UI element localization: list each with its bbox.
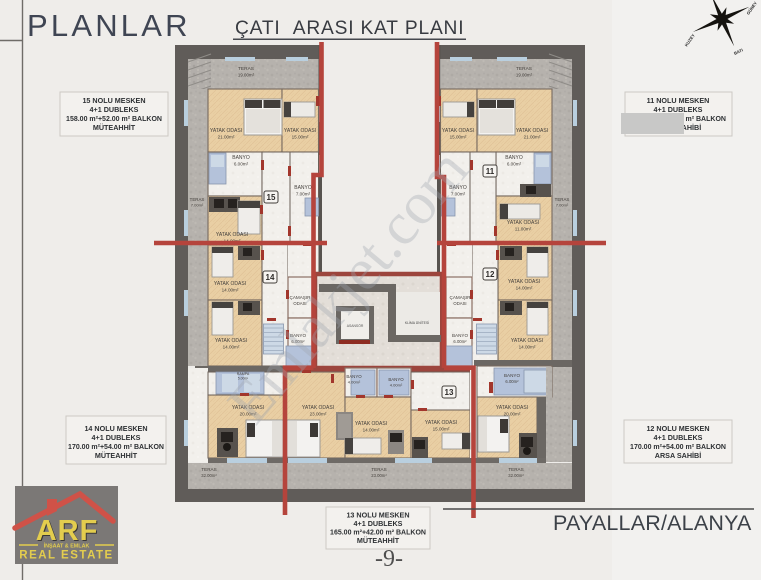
svg-text:ARF: ARF	[36, 515, 99, 547]
svg-text:4.00m²: 4.00m²	[390, 383, 403, 388]
svg-text:YATAK ODASI: YATAK ODASI	[507, 220, 539, 226]
svg-text:7.00m²: 7.00m²	[296, 191, 311, 196]
svg-text:BANYO: BANYO	[452, 333, 469, 338]
svg-text:13: 13	[445, 388, 454, 397]
svg-text:PLANLAR: PLANLAR	[27, 8, 191, 43]
svg-text:YATAK ODASI: YATAK ODASI	[284, 128, 316, 134]
svg-text:11 NOLU MESKEN: 11 NOLU MESKEN	[647, 96, 710, 105]
svg-text:15.00m²: 15.00m²	[433, 426, 450, 431]
svg-text:TERAS: TERAS	[190, 197, 205, 202]
svg-text:6.00m²: 6.00m²	[505, 379, 519, 384]
svg-text:REAL ESTATE: REAL ESTATE	[19, 550, 113, 562]
svg-text:15.00m²: 15.00m²	[292, 134, 309, 139]
svg-text:6.00m²: 6.00m²	[234, 161, 249, 166]
svg-text:BANYO: BANYO	[388, 377, 404, 382]
svg-text:4+1 DUBLEKS: 4+1 DUBLEKS	[354, 519, 403, 528]
svg-text:BANYO: BANYO	[294, 185, 312, 191]
svg-text:YATAK ODASI: YATAK ODASI	[210, 128, 242, 134]
svg-text:15 NOLU MESKEN: 15 NOLU MESKEN	[82, 96, 145, 105]
svg-text:YATAK ODASI: YATAK ODASI	[355, 421, 387, 427]
svg-text:YATAK ODASI: YATAK ODASI	[216, 232, 248, 238]
svg-text:ÇATI ARASI KAT PLANI: ÇATI ARASI KAT PLANI	[235, 18, 464, 39]
svg-text:YATAK ODASI: YATAK ODASI	[508, 279, 540, 285]
svg-text:21.00m²: 21.00m²	[218, 134, 235, 139]
svg-text:15.00m²: 15.00m²	[450, 134, 467, 139]
svg-text:ODASI: ODASI	[453, 301, 466, 306]
svg-text:4.00m²: 4.00m²	[348, 380, 361, 385]
svg-text:7.00m²: 7.00m²	[556, 203, 569, 208]
svg-text:BANYO: BANYO	[346, 374, 362, 379]
svg-text:BANYO: BANYO	[504, 373, 521, 378]
svg-text:4+1 DUBLEKS: 4+1 DUBLEKS	[654, 433, 703, 442]
svg-text:İNŞAAT & EMLAK: İNŞAAT & EMLAK	[44, 543, 90, 550]
svg-text:21.00m²: 21.00m²	[524, 134, 541, 139]
svg-text:14: 14	[266, 273, 275, 282]
svg-text:15: 15	[267, 193, 276, 202]
svg-text:TERAS: TERAS	[238, 66, 254, 72]
svg-text:23.00m²: 23.00m²	[371, 473, 387, 478]
svg-text:YATAK ODASI: YATAK ODASI	[511, 338, 543, 344]
svg-text:TERAS: TERAS	[201, 467, 216, 472]
svg-text:YATAK ODASI: YATAK ODASI	[516, 128, 548, 134]
svg-text:YATAK ODASI: YATAK ODASI	[302, 405, 334, 411]
svg-text:TERAS: TERAS	[371, 467, 386, 472]
svg-text:YATAK ODASI: YATAK ODASI	[496, 405, 528, 411]
svg-text:170.00 m²+54.00 m² BALKON: 170.00 m²+54.00 m² BALKON	[68, 444, 164, 451]
svg-text:19.00m²: 19.00m²	[238, 72, 255, 77]
svg-text:YATAK ODASI: YATAK ODASI	[425, 420, 457, 426]
svg-text:14.00m²: 14.00m²	[516, 285, 533, 290]
svg-text:4+1 DUBLEKS: 4+1 DUBLEKS	[90, 105, 139, 114]
svg-text:TERAS: TERAS	[516, 66, 532, 72]
svg-text:ÇAMAŞIR: ÇAMAŞIR	[450, 295, 472, 300]
svg-text:KLİMA ÜNİTESİ: KLİMA ÜNİTESİ	[405, 320, 429, 325]
svg-text:MÜTEAHHİT: MÜTEAHHİT	[95, 451, 138, 460]
svg-text:BANYO: BANYO	[505, 155, 523, 161]
svg-text:YATAK ODASI: YATAK ODASI	[215, 338, 247, 344]
svg-text:20.00m²: 20.00m²	[504, 411, 521, 416]
svg-text:14.00m²: 14.00m²	[222, 287, 239, 292]
svg-text:6.00m²: 6.00m²	[507, 161, 522, 166]
svg-text:12: 12	[486, 270, 495, 279]
svg-text:4+1 DUBLEKS: 4+1 DUBLEKS	[92, 433, 141, 442]
svg-text:11: 11	[486, 167, 495, 176]
svg-text:14.00m²: 14.00m²	[223, 344, 240, 349]
svg-text:TERAS: TERAS	[508, 467, 523, 472]
svg-text:158.00 m²+52.00 m² BALKON: 158.00 m²+52.00 m² BALKON	[66, 116, 162, 123]
svg-text:7.00m²: 7.00m²	[191, 203, 204, 208]
svg-text:BANYO: BANYO	[232, 155, 250, 161]
svg-text:4+1 DUBLEKS: 4+1 DUBLEKS	[654, 105, 703, 114]
svg-text:MÜTEAHHİT: MÜTEAHHİT	[357, 536, 400, 545]
svg-text:6.00m²: 6.00m²	[453, 339, 467, 344]
svg-text:14.00m²: 14.00m²	[363, 427, 380, 432]
svg-text:PAYALLAR/ALANYA: PAYALLAR/ALANYA	[553, 511, 752, 535]
svg-text:23.00m²: 23.00m²	[310, 411, 327, 416]
svg-text:32.00m²: 32.00m²	[508, 473, 524, 478]
svg-text:MÜTEAHHİT: MÜTEAHHİT	[93, 123, 136, 132]
svg-text:11.00m²: 11.00m²	[515, 226, 532, 231]
svg-text:12 NOLU MESKEN: 12 NOLU MESKEN	[646, 424, 709, 433]
svg-text:14 NOLU MESKEN: 14 NOLU MESKEN	[84, 424, 147, 433]
svg-text:170.00 m²+54.00 m² BALKON: 170.00 m²+54.00 m² BALKON	[630, 444, 726, 451]
svg-text:YATAK ODASI: YATAK ODASI	[214, 281, 246, 287]
svg-text:-9-: -9-	[375, 546, 403, 572]
svg-text:19.00m²: 19.00m²	[516, 72, 533, 77]
svg-text:TERAS: TERAS	[555, 197, 570, 202]
svg-text:YATAK ODASI: YATAK ODASI	[442, 128, 474, 134]
svg-text:ARSA SAHİBİ: ARSA SAHİBİ	[655, 451, 701, 460]
svg-text:32.00m²: 32.00m²	[201, 473, 217, 478]
svg-text:14.00m²: 14.00m²	[519, 344, 536, 349]
